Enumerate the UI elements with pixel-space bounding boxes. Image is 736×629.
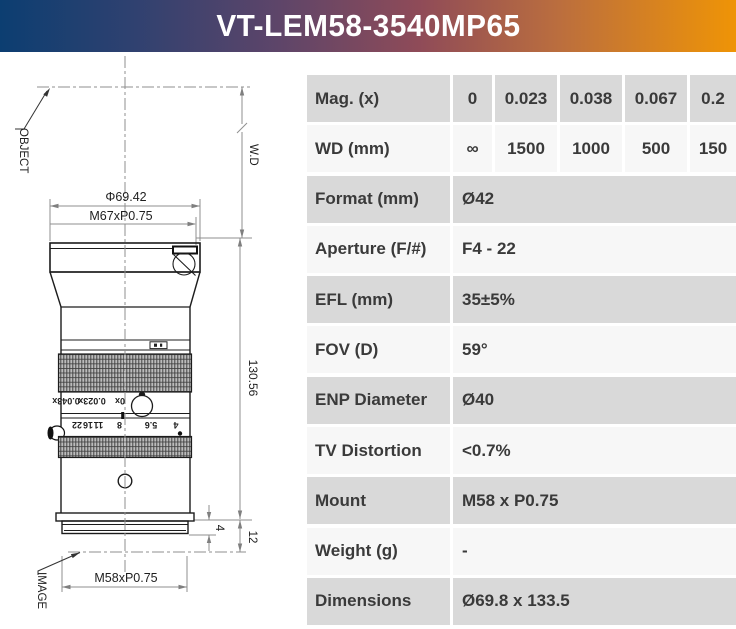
- page-title: VT-LEM58-3540MP65: [216, 8, 520, 44]
- spec-label: Aperture (F/#): [307, 226, 450, 273]
- table-row-aperture: Aperture (F/#) F4 - 22: [307, 226, 736, 273]
- spec-value: 0: [453, 75, 492, 122]
- table-row-mag: Mag. (x) 0 0.023 0.038 0.067 0.2: [307, 75, 736, 122]
- length-label: 130.56: [246, 360, 260, 397]
- spec-table: Mag. (x) 0 0.023 0.038 0.067 0.2 WD (mm)…: [307, 75, 736, 625]
- title-bar: VT-LEM58-3540MP65: [0, 0, 736, 52]
- spec-value: 1500: [495, 125, 557, 172]
- spec-value: 35±5%: [453, 276, 736, 323]
- spec-label: TV Distortion: [307, 427, 450, 474]
- spec-value: M58 x P0.75: [453, 477, 736, 524]
- spec-value: <0.7%: [453, 427, 736, 474]
- spec-value: 0.2: [690, 75, 736, 122]
- spec-value: ∞: [453, 125, 492, 172]
- table-row-dimensions: Dimensions Ø69.8 x 133.5: [307, 578, 736, 625]
- mount-thread-label: M58xP0.75: [94, 571, 157, 585]
- spec-value: 500: [625, 125, 687, 172]
- aperture-scale-mark: 4: [173, 420, 178, 430]
- spec-label: EFL (mm): [307, 276, 450, 323]
- image-label: IMAGE: [35, 572, 47, 609]
- spec-value: F4 - 22: [453, 226, 736, 273]
- lens-body: [48, 243, 201, 534]
- spec-value: 0.067: [625, 75, 687, 122]
- mount-dim-label: 4: [213, 525, 225, 532]
- spec-value: 0.023: [495, 75, 557, 122]
- spec-label: Weight (g): [307, 528, 450, 575]
- spec-value: 0.038: [560, 75, 622, 122]
- front-thread-label: M67xP0.75: [89, 209, 152, 223]
- table-row-weight: Weight (g) -: [307, 528, 736, 575]
- front-diameter-label: Φ69.42: [105, 190, 146, 204]
- table-row-mount: Mount M58 x P0.75: [307, 477, 736, 524]
- spec-label: Dimensions: [307, 578, 450, 625]
- spec-value: -: [453, 528, 736, 575]
- mag-scale-mark: 0.043x: [52, 396, 80, 406]
- table-row-fov: FOV (D) 59°: [307, 326, 736, 373]
- wd-label: W.D: [247, 144, 259, 166]
- spec-value: 150: [690, 125, 736, 172]
- aperture-dot: [178, 431, 182, 435]
- spec-value: Ø69.8 x 133.5: [453, 578, 736, 625]
- aperture-scale-mark: 11: [94, 420, 104, 430]
- filter-thread-section: [173, 247, 197, 254]
- aperture-scale-mark: 22: [72, 420, 82, 430]
- spec-label: ENP Diameter: [307, 377, 450, 424]
- object-label: OBJECT: [17, 128, 29, 173]
- table-row-enp: ENP Diameter Ø40: [307, 377, 736, 424]
- spec-value: 1000: [560, 125, 622, 172]
- aperture-scale-mark: 8: [117, 420, 122, 430]
- spec-label: WD (mm): [307, 125, 450, 172]
- table-row-wd: WD (mm) ∞ 1500 1000 500 150: [307, 125, 736, 172]
- mag-scale-mark: 0.023x: [78, 396, 106, 406]
- object-leader: [15, 88, 50, 129]
- spec-value: Ø40: [453, 377, 736, 424]
- spec-label: Mag. (x): [307, 75, 450, 122]
- back-focal-label: 12: [246, 531, 258, 544]
- spec-value: 59°: [453, 326, 736, 373]
- mag-scale-mark: 0x: [115, 396, 125, 406]
- lens-technical-drawing: OBJECT W.D Φ69.42 M67xP0.75 130.56 4 12 …: [0, 52, 304, 629]
- serial-label-mark: [150, 342, 167, 349]
- table-row-efl: EFL (mm) 35±5%: [307, 276, 736, 323]
- table-row-format: Format (mm) Ø42: [307, 176, 736, 223]
- spec-value: Ø42: [453, 176, 736, 223]
- table-row-distortion: TV Distortion <0.7%: [307, 427, 736, 474]
- spec-label: FOV (D): [307, 326, 450, 373]
- spec-label: Format (mm): [307, 176, 450, 223]
- spec-label: Mount: [307, 477, 450, 524]
- aperture-scale-mark: 16: [83, 420, 93, 430]
- aperture-scale-mark: 5.6: [145, 420, 158, 430]
